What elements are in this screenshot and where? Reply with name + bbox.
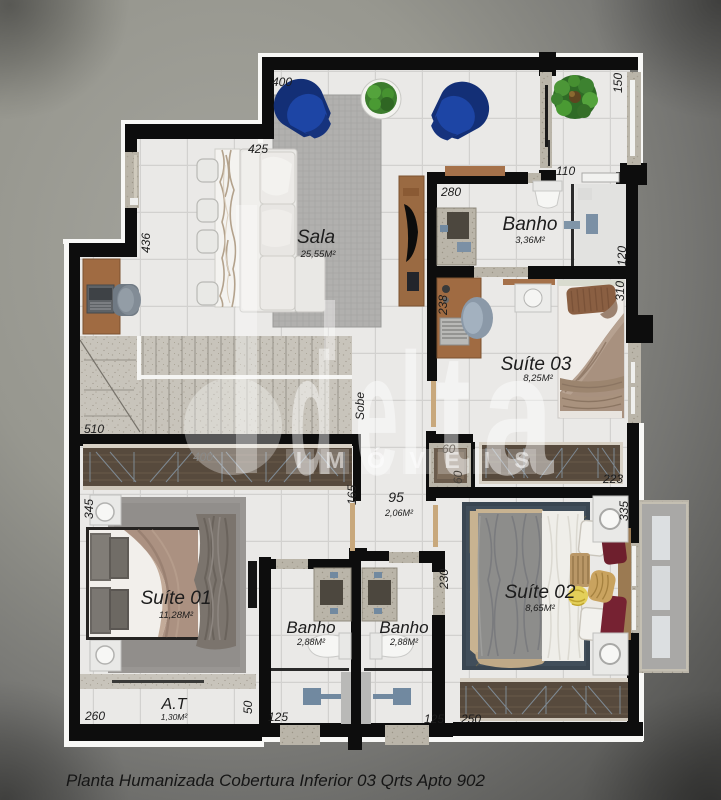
svg-text:A.T: A.T bbox=[161, 696, 188, 713]
svg-text:11,28M²: 11,28M² bbox=[159, 610, 194, 621]
svg-text:2,88M²: 2,88M² bbox=[296, 637, 326, 647]
svg-text:150: 150 bbox=[611, 73, 625, 93]
svg-text:8,65M²: 8,65M² bbox=[525, 603, 555, 614]
svg-text:335: 335 bbox=[617, 501, 631, 521]
svg-text:95: 95 bbox=[388, 489, 404, 505]
svg-text:223: 223 bbox=[602, 472, 623, 486]
svg-text:120: 120 bbox=[615, 246, 629, 266]
svg-text:165: 165 bbox=[345, 485, 359, 505]
svg-text:Sobe: Sobe bbox=[353, 392, 367, 420]
svg-text:60: 60 bbox=[451, 470, 465, 484]
svg-text:Sala: Sala bbox=[297, 227, 335, 248]
svg-text:Suíte 03: Suíte 03 bbox=[501, 354, 572, 375]
svg-text:I: I bbox=[296, 447, 302, 473]
svg-text:I: I bbox=[484, 447, 490, 473]
svg-text:436: 436 bbox=[139, 233, 153, 253]
svg-text:238: 238 bbox=[436, 295, 450, 316]
svg-text:60: 60 bbox=[442, 442, 456, 456]
svg-text:110: 110 bbox=[556, 164, 575, 178]
svg-text:230: 230 bbox=[437, 569, 451, 590]
svg-text:8,25M²: 8,25M² bbox=[523, 373, 553, 384]
svg-text:425: 425 bbox=[248, 142, 268, 156]
svg-text:S: S bbox=[514, 447, 529, 473]
svg-text:400: 400 bbox=[193, 450, 213, 464]
svg-text:Banho: Banho bbox=[503, 214, 558, 235]
svg-text:25,55M²: 25,55M² bbox=[300, 249, 337, 260]
svg-text:l: l bbox=[400, 319, 422, 511]
svg-text:50: 50 bbox=[241, 700, 255, 714]
svg-text:Suíte 02: Suíte 02 bbox=[505, 582, 576, 603]
svg-text:310: 310 bbox=[613, 281, 627, 301]
svg-text:125: 125 bbox=[268, 710, 288, 724]
svg-text:M: M bbox=[325, 447, 344, 473]
svg-text:2,06M²: 2,06M² bbox=[384, 508, 414, 518]
svg-text:Banho: Banho bbox=[379, 618, 428, 637]
svg-text:Planta Humanizada Cobertura I: Planta Humanizada Cobertura Inferior 03 … bbox=[66, 771, 485, 790]
svg-text:260: 260 bbox=[84, 709, 105, 723]
svg-text:3,36M²: 3,36M² bbox=[515, 235, 545, 246]
svg-text:345: 345 bbox=[82, 499, 96, 519]
svg-text:2,88M²: 2,88M² bbox=[389, 637, 419, 647]
svg-text:V: V bbox=[409, 447, 425, 473]
svg-text:125: 125 bbox=[424, 712, 444, 726]
svg-text:280: 280 bbox=[440, 185, 461, 199]
svg-text:1,30M²: 1,30M² bbox=[161, 712, 189, 722]
svg-text:Banho: Banho bbox=[286, 618, 335, 637]
svg-text:250: 250 bbox=[460, 712, 481, 726]
svg-text:a: a bbox=[483, 319, 555, 512]
svg-text:Ó: Ó bbox=[367, 446, 385, 473]
svg-text:510: 510 bbox=[84, 422, 104, 436]
svg-text:400: 400 bbox=[272, 75, 292, 89]
svg-text:Suíte 01: Suíte 01 bbox=[141, 588, 212, 609]
